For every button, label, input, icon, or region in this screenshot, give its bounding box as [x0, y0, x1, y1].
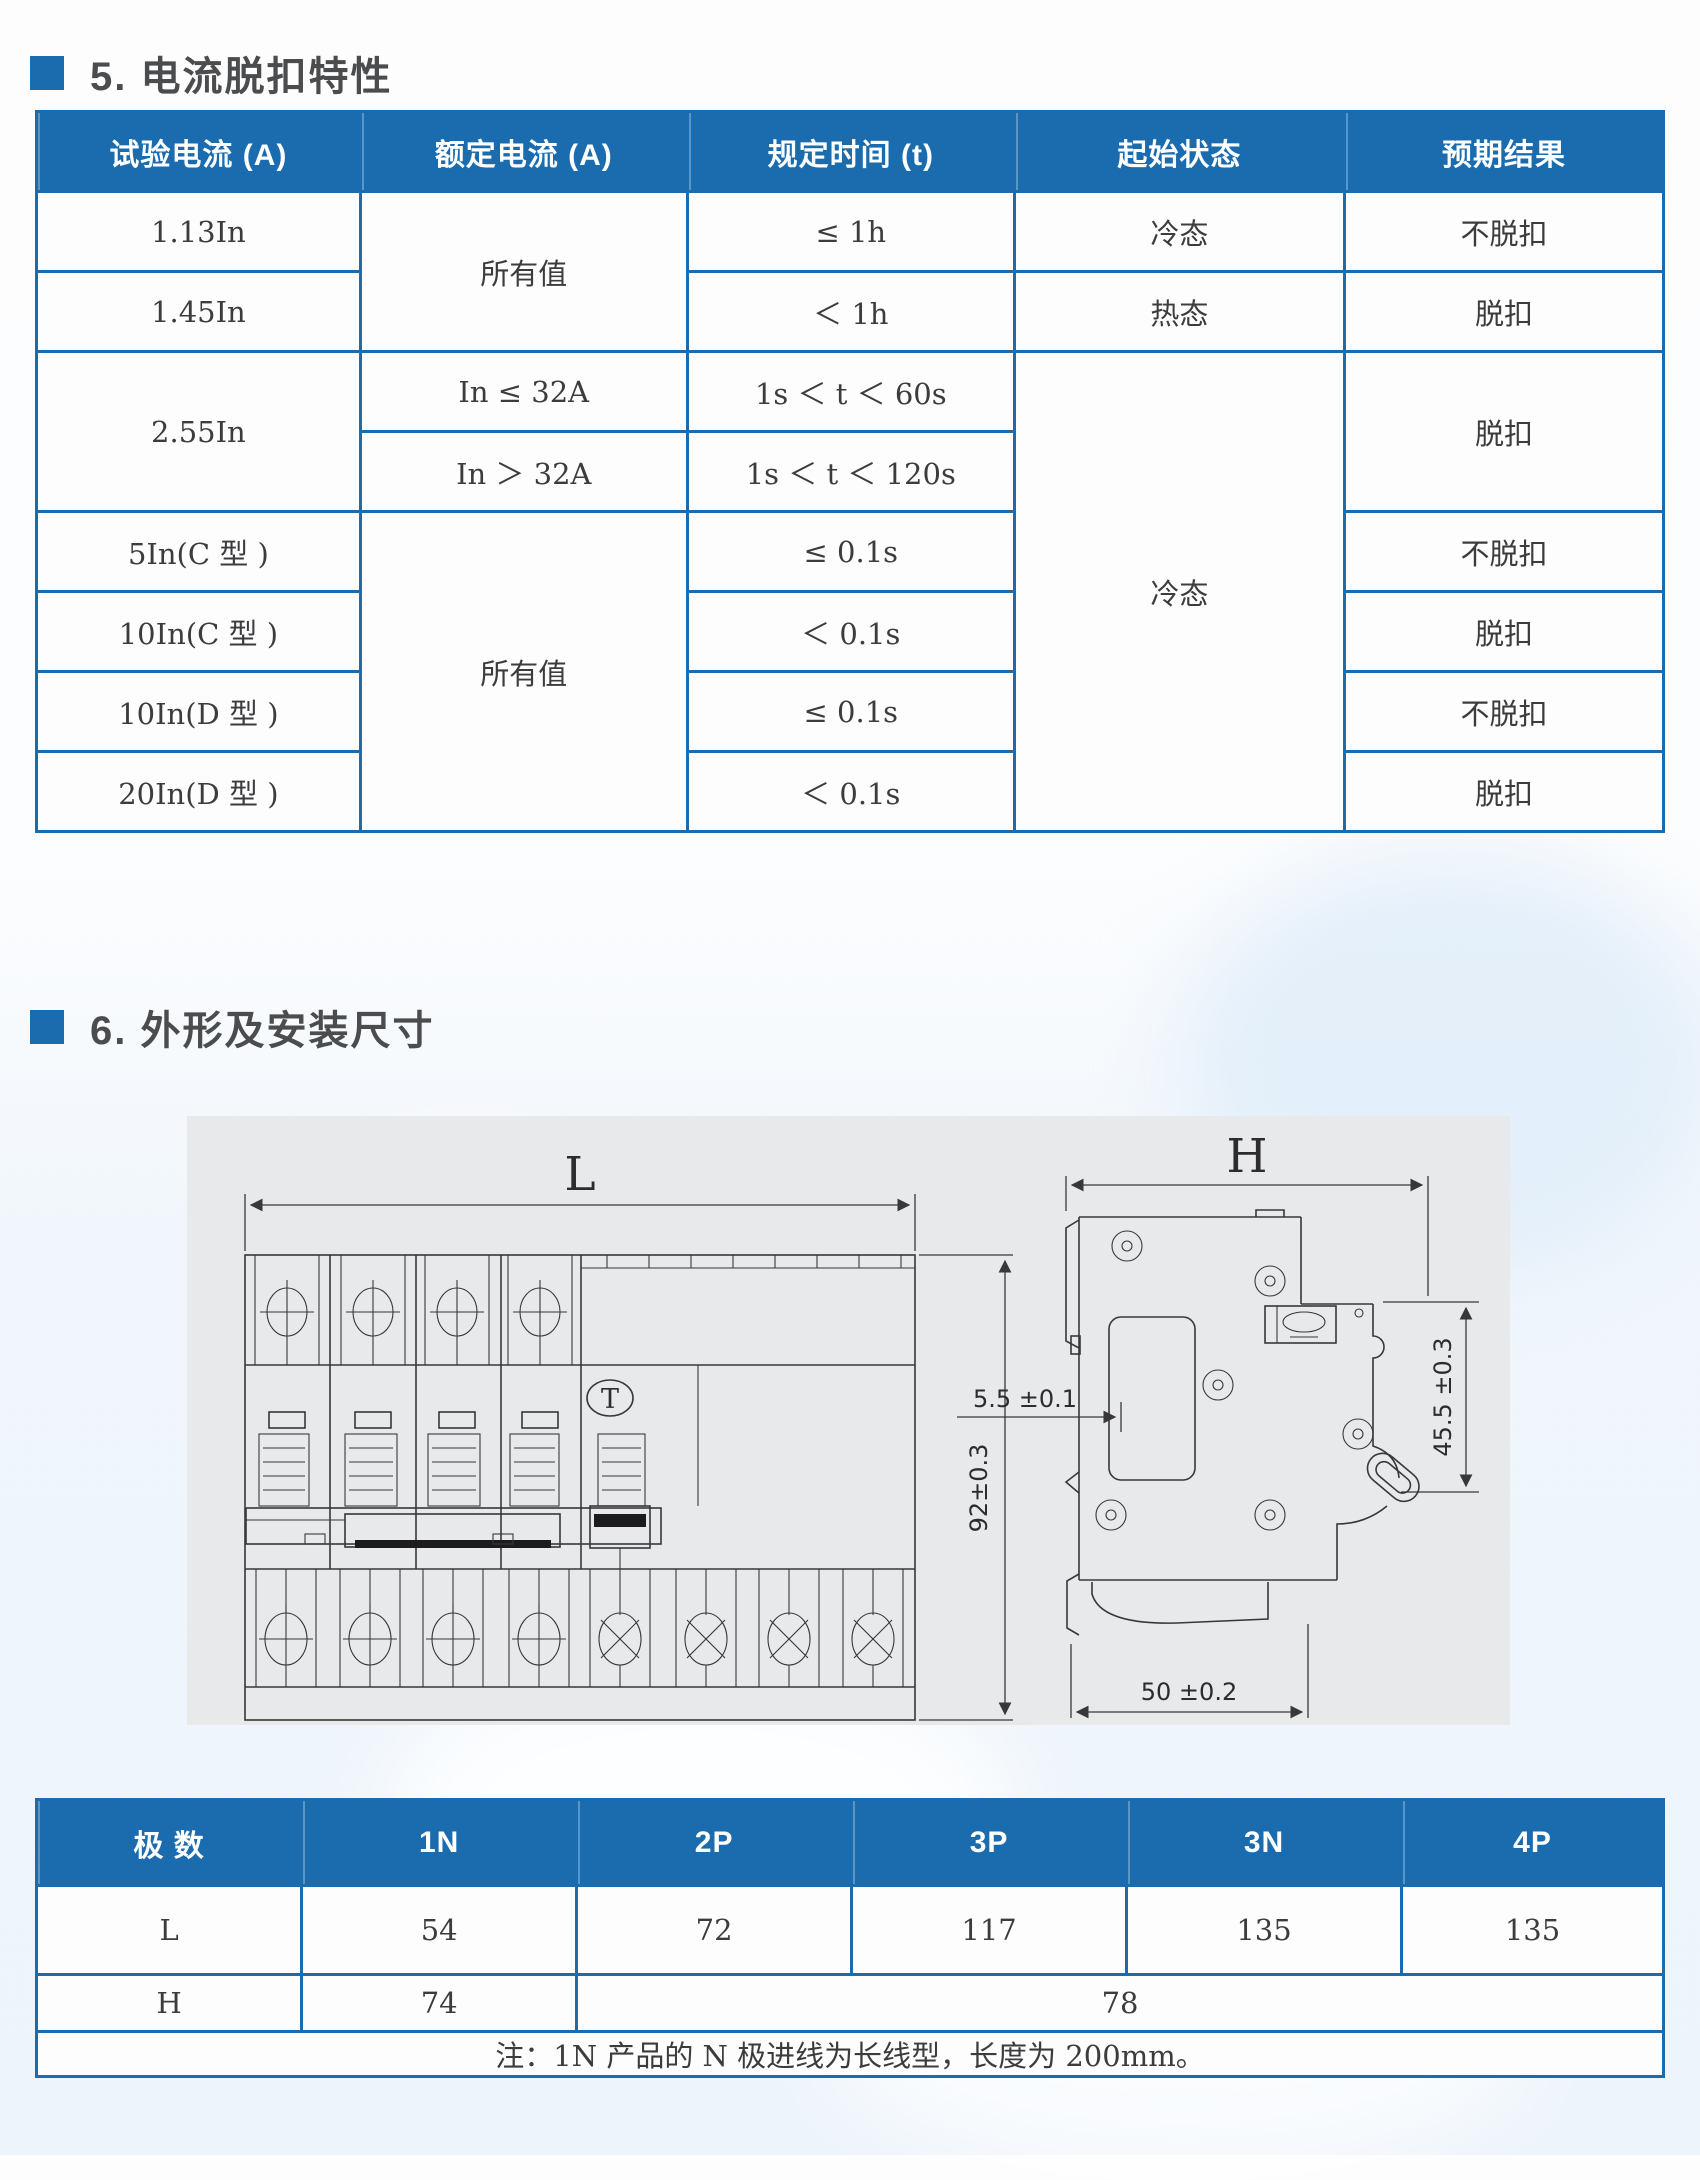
column-header: 3N: [1127, 1800, 1402, 1886]
table-cell: 1.13In: [37, 192, 361, 272]
table-cell: L: [37, 1886, 302, 1975]
column-header: 1N: [302, 1800, 577, 1886]
pad-stacks: [259, 1434, 645, 1506]
column-header: 起始状态: [1014, 112, 1344, 192]
table-row: 注：1N 产品的 N 极进线为长线型，长度为 200mm。: [37, 2032, 1664, 2077]
section-bullet-square: [30, 1010, 64, 1044]
table-row: 5In(C 型 )所有值≤ 0.1s不脱扣: [37, 512, 1664, 592]
column-header: 试验电流 (A): [37, 112, 361, 192]
front-view: L 92±0.3: [245, 1147, 1013, 1720]
table-cell: 20In(D 型 ): [37, 752, 361, 832]
table-cell: 10In(C 型 ): [37, 592, 361, 672]
table-cell: 脱扣: [1345, 752, 1664, 832]
table-cell: ＜ 0.1s: [687, 752, 1014, 832]
table-cell: 54: [302, 1886, 577, 1975]
table-cell: 5In(C 型 ): [37, 512, 361, 592]
trip-characteristics-table: 试验电流 (A)额定电流 (A)规定时间 (t)起始状态预期结果1.13In所有…: [35, 110, 1665, 833]
table-cell: H: [37, 1975, 302, 2032]
table-cell: 所有值: [360, 512, 687, 832]
table-row: 1.13In所有值≤ 1h冷态不脱扣: [37, 192, 1664, 272]
top-terminal-screws: [260, 1280, 567, 1365]
table-cell: 冷态: [1014, 352, 1344, 832]
table-cell: 热态: [1014, 272, 1344, 352]
column-header: 2P: [577, 1800, 852, 1886]
datasheet-page: { "colors": { "accent": "#1b6cae", "head…: [0, 0, 1700, 2155]
section-6-heading: 6. 外形及安装尺寸: [30, 998, 434, 1056]
test-button-label: T: [601, 1384, 619, 1415]
table-cell: ≤ 1h: [687, 192, 1014, 272]
table-row: 20In(D 型 )＜ 0.1s脱扣: [37, 752, 1664, 832]
table-cell: 72: [577, 1886, 852, 1975]
table-row: 1.45In＜ 1h热态脱扣: [37, 272, 1664, 352]
dim-label-H: H: [1227, 1129, 1268, 1184]
table-cell: 不脱扣: [1345, 512, 1664, 592]
trip-table: 试验电流 (A)额定电流 (A)规定时间 (t)起始状态预期结果1.13In所有…: [35, 110, 1665, 833]
table-cell: 所有值: [360, 192, 687, 352]
section-5-heading: 5. 电流脱扣特性: [30, 44, 392, 102]
table-row: L5472117135135: [37, 1886, 1664, 1975]
dim-label-L: L: [564, 1147, 595, 1202]
table-row: 10In(D 型 )≤ 0.1s不脱扣: [37, 672, 1664, 752]
table-row: H7478: [37, 1975, 1664, 2032]
column-header: 4P: [1402, 1800, 1664, 1886]
column-header: 3P: [852, 1800, 1127, 1886]
column-header: 规定时间 (t): [687, 112, 1014, 192]
table-cell: 135: [1127, 1886, 1402, 1975]
pole-handle-slots: [269, 1412, 558, 1428]
table-cell: 135: [1402, 1886, 1664, 1975]
dimension-drawing: L 92±0.3: [187, 1116, 1510, 1725]
header-row: 试验电流 (A)额定电流 (A)规定时间 (t)起始状态预期结果: [37, 112, 1664, 192]
side-view: H: [957, 1129, 1479, 1718]
table-cell: 1.45In: [37, 272, 361, 352]
table-cell: In ＞ 32A: [360, 432, 687, 512]
section-bullet-square: [30, 56, 64, 90]
table-cell: 不脱扣: [1345, 192, 1664, 272]
section-6-title: 6. 外形及安装尺寸: [90, 998, 434, 1056]
table-cell: 78: [577, 1975, 1664, 2032]
table-cell: 1s ＜ t ＜ 60s: [687, 352, 1014, 432]
column-header: 极 数: [37, 1800, 302, 1886]
table-cell: 2.55In: [37, 352, 361, 512]
table-cell: ＜ 1h: [687, 272, 1014, 352]
table-cell: In ≤ 32A: [360, 352, 687, 432]
table-cell: 1s ＜ t ＜ 120s: [687, 432, 1014, 512]
table-cell: ≤ 0.1s: [687, 512, 1014, 592]
table-cell: 74: [302, 1975, 577, 2032]
column-header: 额定电流 (A): [360, 112, 687, 192]
dim-table: 极 数1N2P3P3N4PL5472117135135H7478注：1N 产品的…: [35, 1798, 1665, 2078]
table-cell: 不脱扣: [1345, 672, 1664, 752]
test-button: T: [587, 1380, 633, 1416]
table-cell: 冷态: [1014, 192, 1344, 272]
table-cell: 脱扣: [1345, 352, 1664, 512]
column-header: 预期结果: [1345, 112, 1664, 192]
section-5-title: 5. 电流脱扣特性: [90, 44, 392, 102]
toggle-bar: [246, 1506, 661, 1569]
table-cell: 10In(D 型 ): [37, 672, 361, 752]
dim-label-5.5: 5.5 ±0.1: [973, 1385, 1077, 1413]
table-row: 2.55InIn ≤ 32A1s ＜ t ＜ 60s冷态脱扣: [37, 352, 1664, 432]
dim-label-92: 92±0.3: [965, 1444, 993, 1533]
bottom-terminal-screws: [259, 1569, 894, 1687]
table-row: 10In(C 型 )＜ 0.1s脱扣: [37, 592, 1664, 672]
dim-label-45.5: 45.5 ±0.3: [1429, 1337, 1457, 1456]
table-cell: 117: [852, 1886, 1127, 1975]
pole-dimensions-table: 极 数1N2P3P3N4PL5472117135135H7478注：1N 产品的…: [35, 1798, 1665, 2078]
dim-label-50: 50 ±0.2: [1141, 1678, 1237, 1706]
side-toggle-lever: [1361, 1447, 1425, 1507]
table-cell: 注：1N 产品的 N 极进线为长线型，长度为 200mm。: [37, 2032, 1664, 2077]
header-row: 极 数1N2P3P3N4P: [37, 1800, 1664, 1886]
table-cell: ≤ 0.1s: [687, 672, 1014, 752]
table-cell: 脱扣: [1345, 272, 1664, 352]
table-cell: 脱扣: [1345, 592, 1664, 672]
table-cell: ＜ 0.1s: [687, 592, 1014, 672]
dimension-drawing-panel: L 92±0.3: [187, 1116, 1510, 1725]
